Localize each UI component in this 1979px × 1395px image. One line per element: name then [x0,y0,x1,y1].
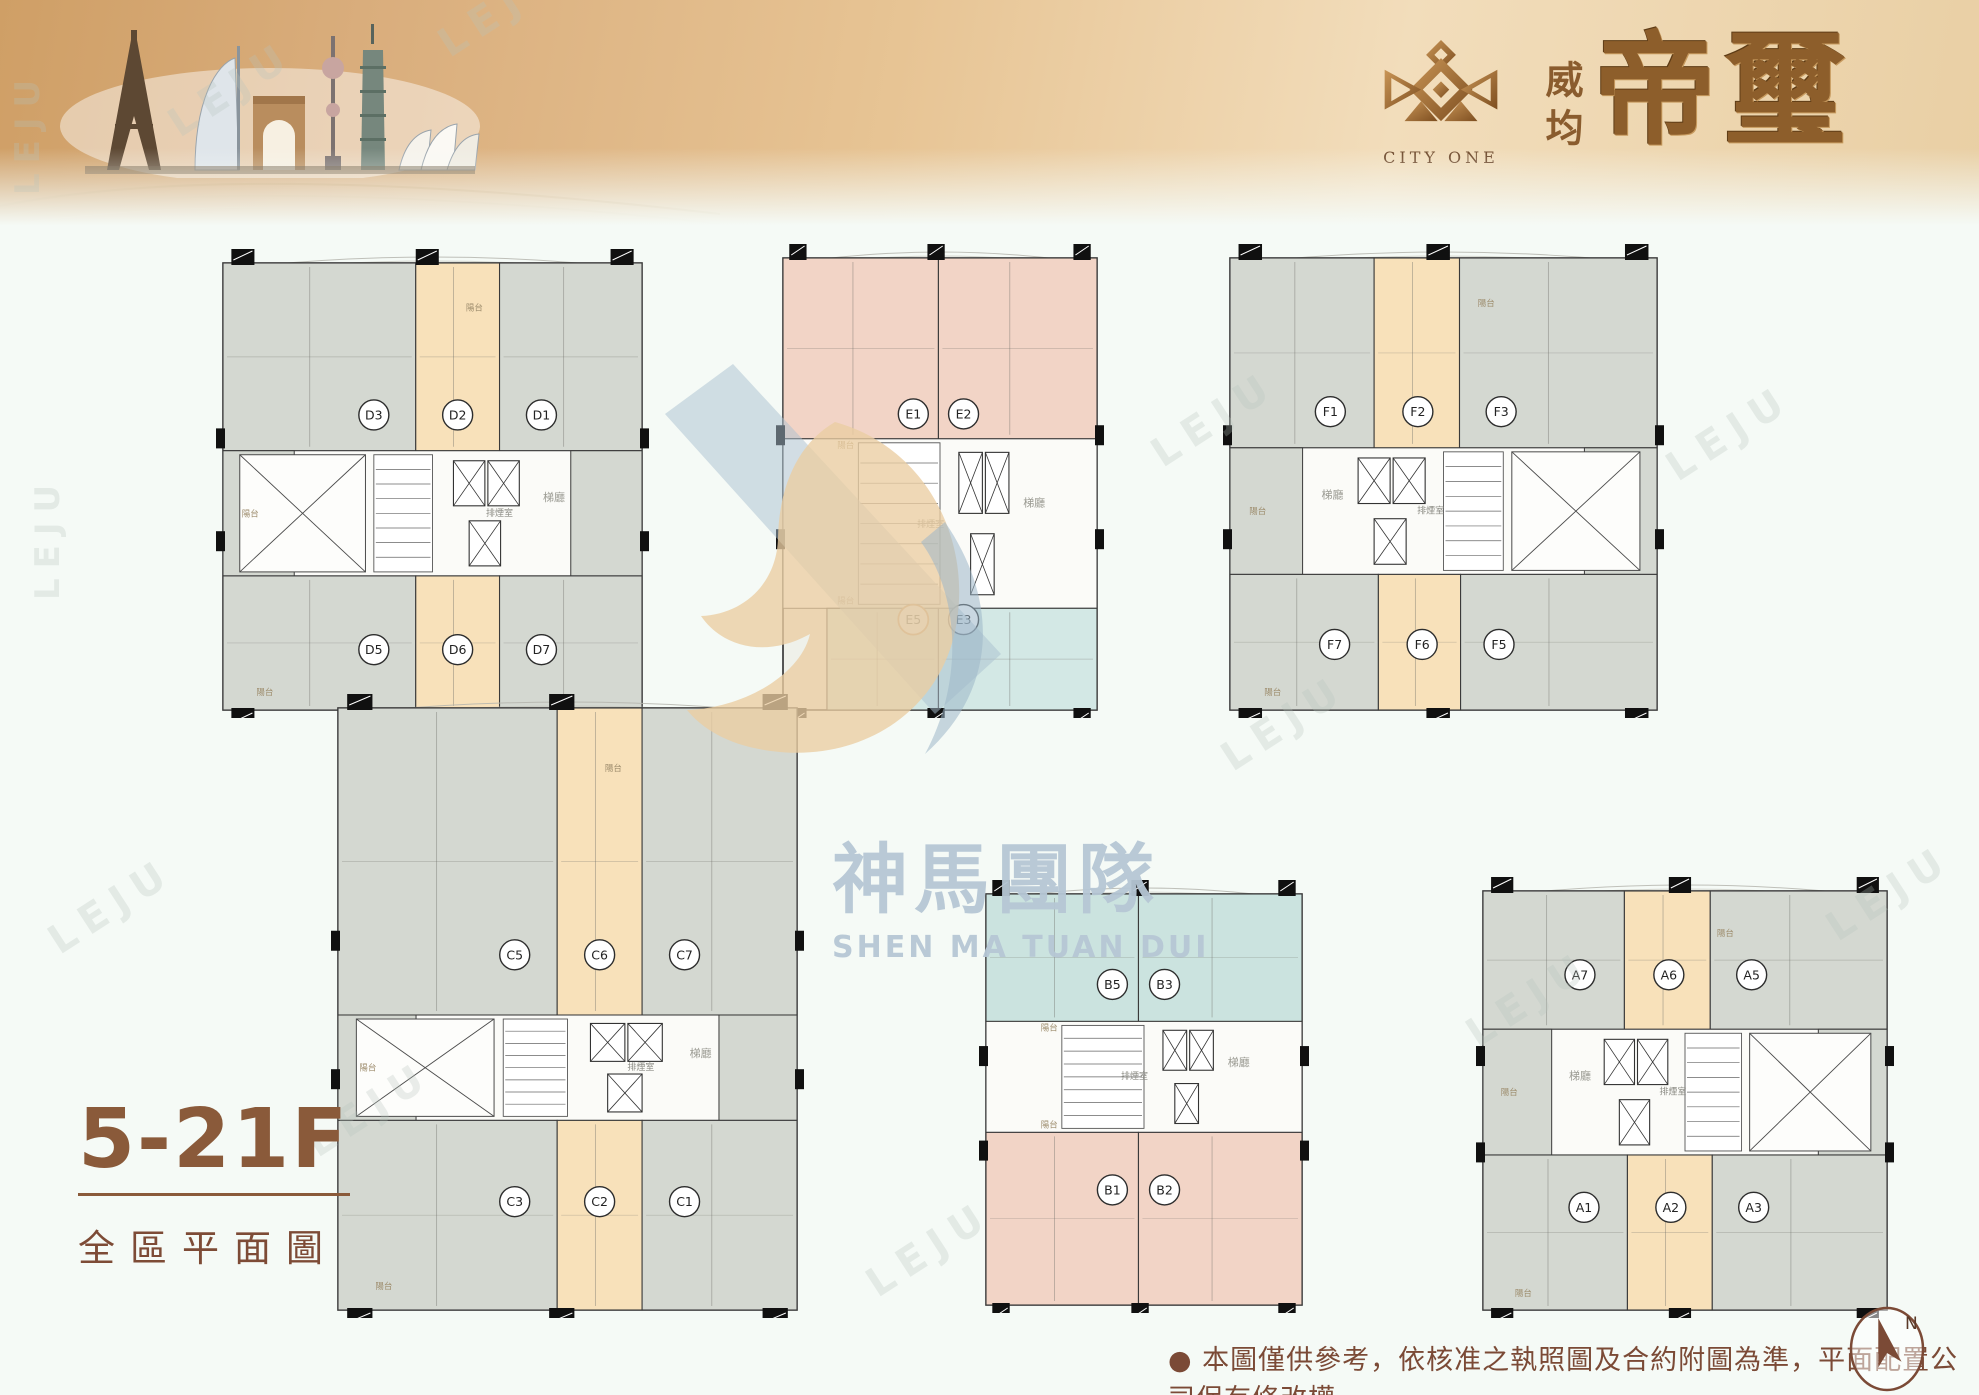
svg-text:B2: B2 [1156,1182,1173,1197]
unit-label-C2: C2 [585,1187,615,1217]
svg-text:C2: C2 [591,1194,608,1209]
svg-text:F2: F2 [1410,404,1425,419]
unit-label-D3: D3 [359,400,389,430]
floor-range-block: 5-21F 全區平面圖 [78,1092,350,1272]
unit-label-B3: B3 [1150,969,1180,999]
unit-label-D5: D5 [359,635,389,665]
svg-text:F1: F1 [1323,404,1338,419]
unit-label-A2: A2 [1656,1192,1686,1222]
balcony-label: 陽台 [466,303,483,314]
smoke-room-label: 排煙室 [486,507,513,519]
leju-watermark: LEJU [28,475,68,600]
svg-text:B1: B1 [1104,1182,1121,1197]
unit-label-B1: B1 [1097,1175,1127,1205]
stair-hall-label: 梯廳 [1023,496,1045,510]
svg-text:B5: B5 [1104,977,1121,992]
svg-text:C6: C6 [591,947,608,962]
stair-hall-label: 梯廳 [690,1046,712,1060]
balcony-label: 陽台 [837,440,854,451]
brand-name-large: 帝璽 [1594,26,1854,154]
svg-text:D5: D5 [365,642,383,657]
unit-label-E1: E1 [898,399,928,429]
unit-label-A6: A6 [1654,960,1684,990]
svg-text:D3: D3 [365,407,383,422]
unit-label-A7: A7 [1565,960,1595,990]
unit-label-B2: B2 [1150,1175,1180,1205]
floorplan-brochure-page: CITY ONE 威均 帝璽 排煙室梯廳陽台陽台陽台D3D2D1D5D6D7排煙… [0,0,1979,1395]
floorplan-D: 排煙室梯廳陽台陽台陽台D3D2D1D5D6D7 [215,237,650,718]
compass-n-label: N [1905,1314,1918,1334]
svg-text:C7: C7 [676,947,693,962]
balcony-label: 陽台 [1249,506,1266,517]
svg-text:A3: A3 [1745,1200,1762,1215]
balcony-label: 陽台 [1041,1022,1058,1033]
balcony-label: 陽台 [256,687,273,698]
stair-hall-label: 梯廳 [1569,1069,1591,1083]
svg-text:E1: E1 [905,406,921,421]
unit-label-A1: A1 [1569,1192,1599,1222]
svg-text:F7: F7 [1327,637,1342,652]
unit-label-C5: C5 [500,940,530,970]
svg-text:A1: A1 [1576,1200,1593,1215]
leju-watermark: LEJU [40,849,183,964]
balcony-label: 陽台 [1264,687,1281,698]
balcony-label: 陽台 [1515,1288,1532,1299]
floorplan-C: 排煙室梯廳陽台陽台陽台C5C6C7C3C2C1 [330,682,805,1318]
svg-text:F3: F3 [1494,404,1509,419]
svg-text:F5: F5 [1491,637,1506,652]
unit-label-D1: D1 [526,400,556,430]
unit-label-F6: F6 [1407,629,1437,659]
unit-label-C3: C3 [500,1187,530,1217]
unit-label-D2: D2 [443,400,473,430]
unit-label-A3: A3 [1739,1192,1769,1222]
north-compass-icon: N [1843,1303,1935,1395]
title-subtitle: 全區平面圖 [78,1218,350,1272]
unit-label-D7: D7 [526,635,556,665]
svg-text:E3: E3 [956,612,972,627]
smoke-room-label: 排煙室 [1417,505,1444,517]
floor-range-text: 5-21F [78,1092,350,1187]
floorplan-F: 排煙室梯廳陽台陽台陽台F1F2F3F7F6F5 [1222,232,1665,718]
svg-text:C5: C5 [506,947,523,962]
balcony-label: 陽台 [242,508,259,519]
unit-label-F3: F3 [1486,397,1516,427]
unit-label-E5: E5 [898,605,928,635]
cityone-crown-logo [1383,36,1499,140]
unit-label-F2: F2 [1403,397,1433,427]
svg-text:C1: C1 [676,1194,693,1209]
stair-hall-label: 梯廳 [1228,1055,1250,1069]
svg-text:D1: D1 [533,407,551,422]
unit-label-C7: C7 [670,940,700,970]
balcony-label: 陽台 [1041,1119,1058,1130]
svg-text:E2: E2 [956,406,972,421]
svg-text:E5: E5 [905,612,921,627]
unit-label-F1: F1 [1315,397,1345,427]
unit-label-D6: D6 [443,635,473,665]
balcony-label: 陽台 [1478,298,1495,309]
svg-text:B3: B3 [1156,977,1173,992]
banner-fade [0,148,1979,236]
balcony-label: 陽台 [375,1281,392,1292]
stair-hall-label: 梯廳 [543,490,565,504]
svg-text:A2: A2 [1663,1200,1680,1215]
balcony-label: 陽台 [359,1063,376,1074]
svg-text:C3: C3 [506,1194,523,1209]
unit-label-F7: F7 [1320,629,1350,659]
svg-text:D2: D2 [449,407,467,422]
svg-text:A5: A5 [1743,967,1760,982]
smoke-room-label: 排煙室 [1121,1070,1148,1082]
unit-label-C1: C1 [670,1187,700,1217]
unit-label-C6: C6 [585,940,615,970]
svg-text:F6: F6 [1415,637,1430,652]
floorplan-B: 排煙室梯廳陽台陽台B5B3B1B2 [978,868,1310,1313]
svg-text:D7: D7 [533,642,551,657]
svg-text:A6: A6 [1661,967,1678,982]
title-rule [78,1193,350,1196]
unit-label-E2: E2 [949,399,979,429]
smoke-room-label: 排煙室 [627,1061,654,1073]
svg-text:A7: A7 [1572,967,1589,982]
svg-text:D6: D6 [449,642,467,657]
smoke-room-label: 排煙室 [1659,1086,1686,1098]
stair-hall-label: 梯廳 [1321,487,1343,501]
unit-label-B5: B5 [1097,969,1127,999]
balcony-label: 陽台 [1501,1087,1518,1098]
unit-label-E3: E3 [949,605,979,635]
unit-label-A5: A5 [1737,960,1767,990]
balcony-label: 陽台 [837,595,854,606]
floorplan-A: 排煙室梯廳陽台陽台陽台A7A6A5A1A2A3 [1475,865,1895,1318]
balcony-label: 陽台 [1717,928,1734,939]
balcony-label: 陽台 [605,763,622,774]
floorplan-E: 排煙室梯廳陽台陽台E1E2E5E3 [775,232,1105,718]
smoke-room-label: 排煙室 [917,518,944,530]
leju-watermark: LEJU [1658,376,1801,491]
unit-label-F5: F5 [1484,629,1514,659]
